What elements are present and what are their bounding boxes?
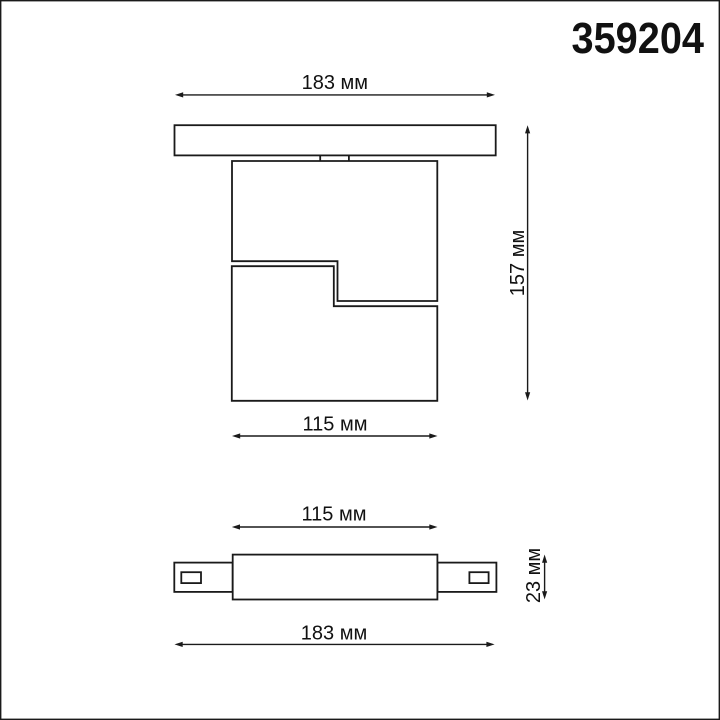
svg-text:183 мм: 183 мм — [302, 72, 368, 94]
svg-text:359204: 359204 — [572, 15, 705, 63]
svg-text:183 мм: 183 мм — [301, 623, 367, 645]
svg-text:115 мм: 115 мм — [303, 413, 368, 435]
svg-text:115 мм: 115 мм — [302, 503, 367, 525]
svg-text:157 мм: 157 мм — [507, 230, 529, 296]
svg-text:23 мм: 23 мм — [523, 548, 545, 603]
